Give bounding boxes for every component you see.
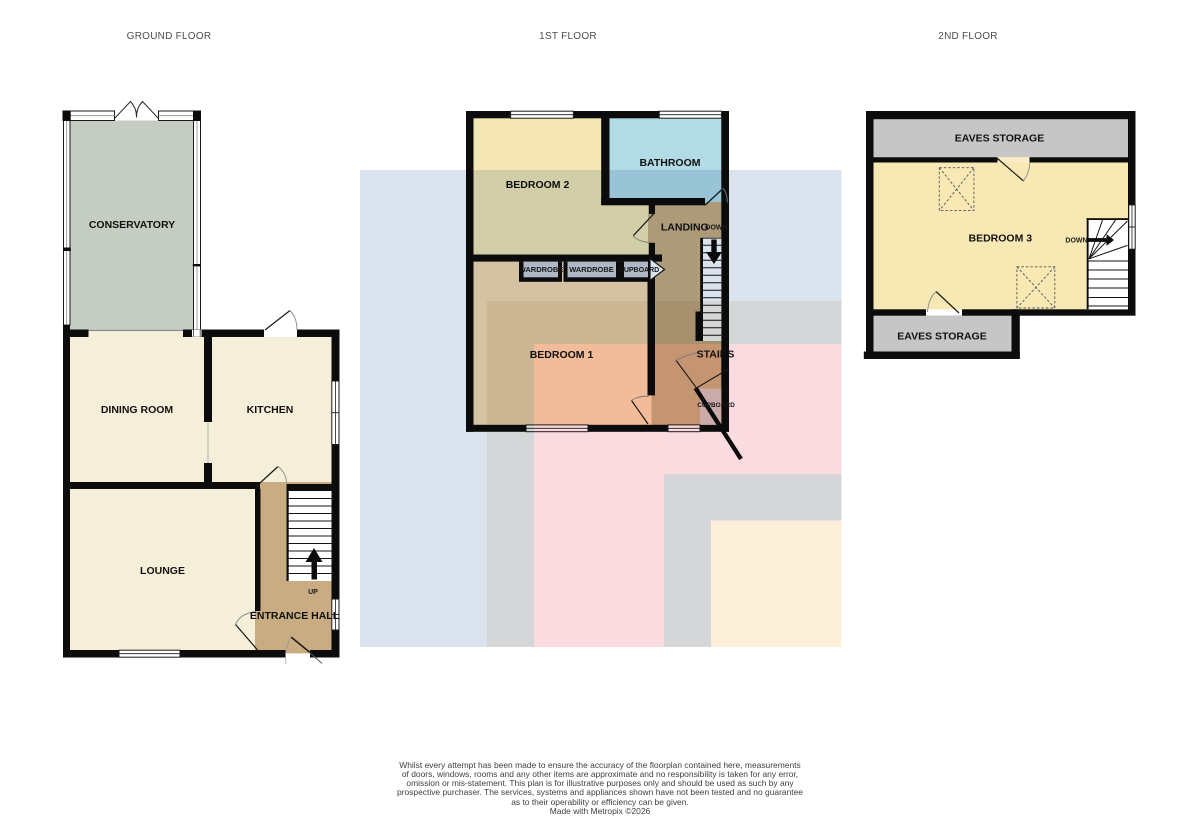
svg-text:WARDROBE: WARDROBE [519, 265, 564, 274]
svg-text:CUPBOARD: CUPBOARD [619, 267, 659, 274]
svg-text:EAVES STORAGE: EAVES STORAGE [955, 132, 1044, 144]
svg-text:WARDROBE: WARDROBE [569, 265, 614, 274]
svg-text:UP: UP [308, 589, 318, 596]
svg-text:LOUNGE: LOUNGE [140, 565, 185, 577]
svg-text:EAVES STORAGE: EAVES STORAGE [897, 331, 986, 343]
svg-text:KITCHEN: KITCHEN [247, 404, 294, 416]
svg-text:ENTRANCE HALL: ENTRANCE HALL [250, 610, 340, 622]
svg-text:CUPBOARD: CUPBOARD [697, 402, 735, 409]
svg-text:LANDING: LANDING [661, 222, 709, 234]
svg-text:BATHROOM: BATHROOM [639, 157, 700, 169]
svg-text:DOWN: DOWN [1065, 237, 1087, 244]
svg-text:DOWN: DOWN [705, 224, 727, 231]
svg-text:STAIRS: STAIRS [697, 348, 735, 360]
svg-text:BEDROOM 2: BEDROOM 2 [506, 179, 570, 191]
svg-text:CONSERVATORY: CONSERVATORY [89, 219, 175, 231]
svg-text:BEDROOM 1: BEDROOM 1 [530, 349, 594, 361]
svg-text:DINING ROOM: DINING ROOM [101, 404, 174, 416]
svg-text:BEDROOM 3: BEDROOM 3 [969, 233, 1033, 245]
